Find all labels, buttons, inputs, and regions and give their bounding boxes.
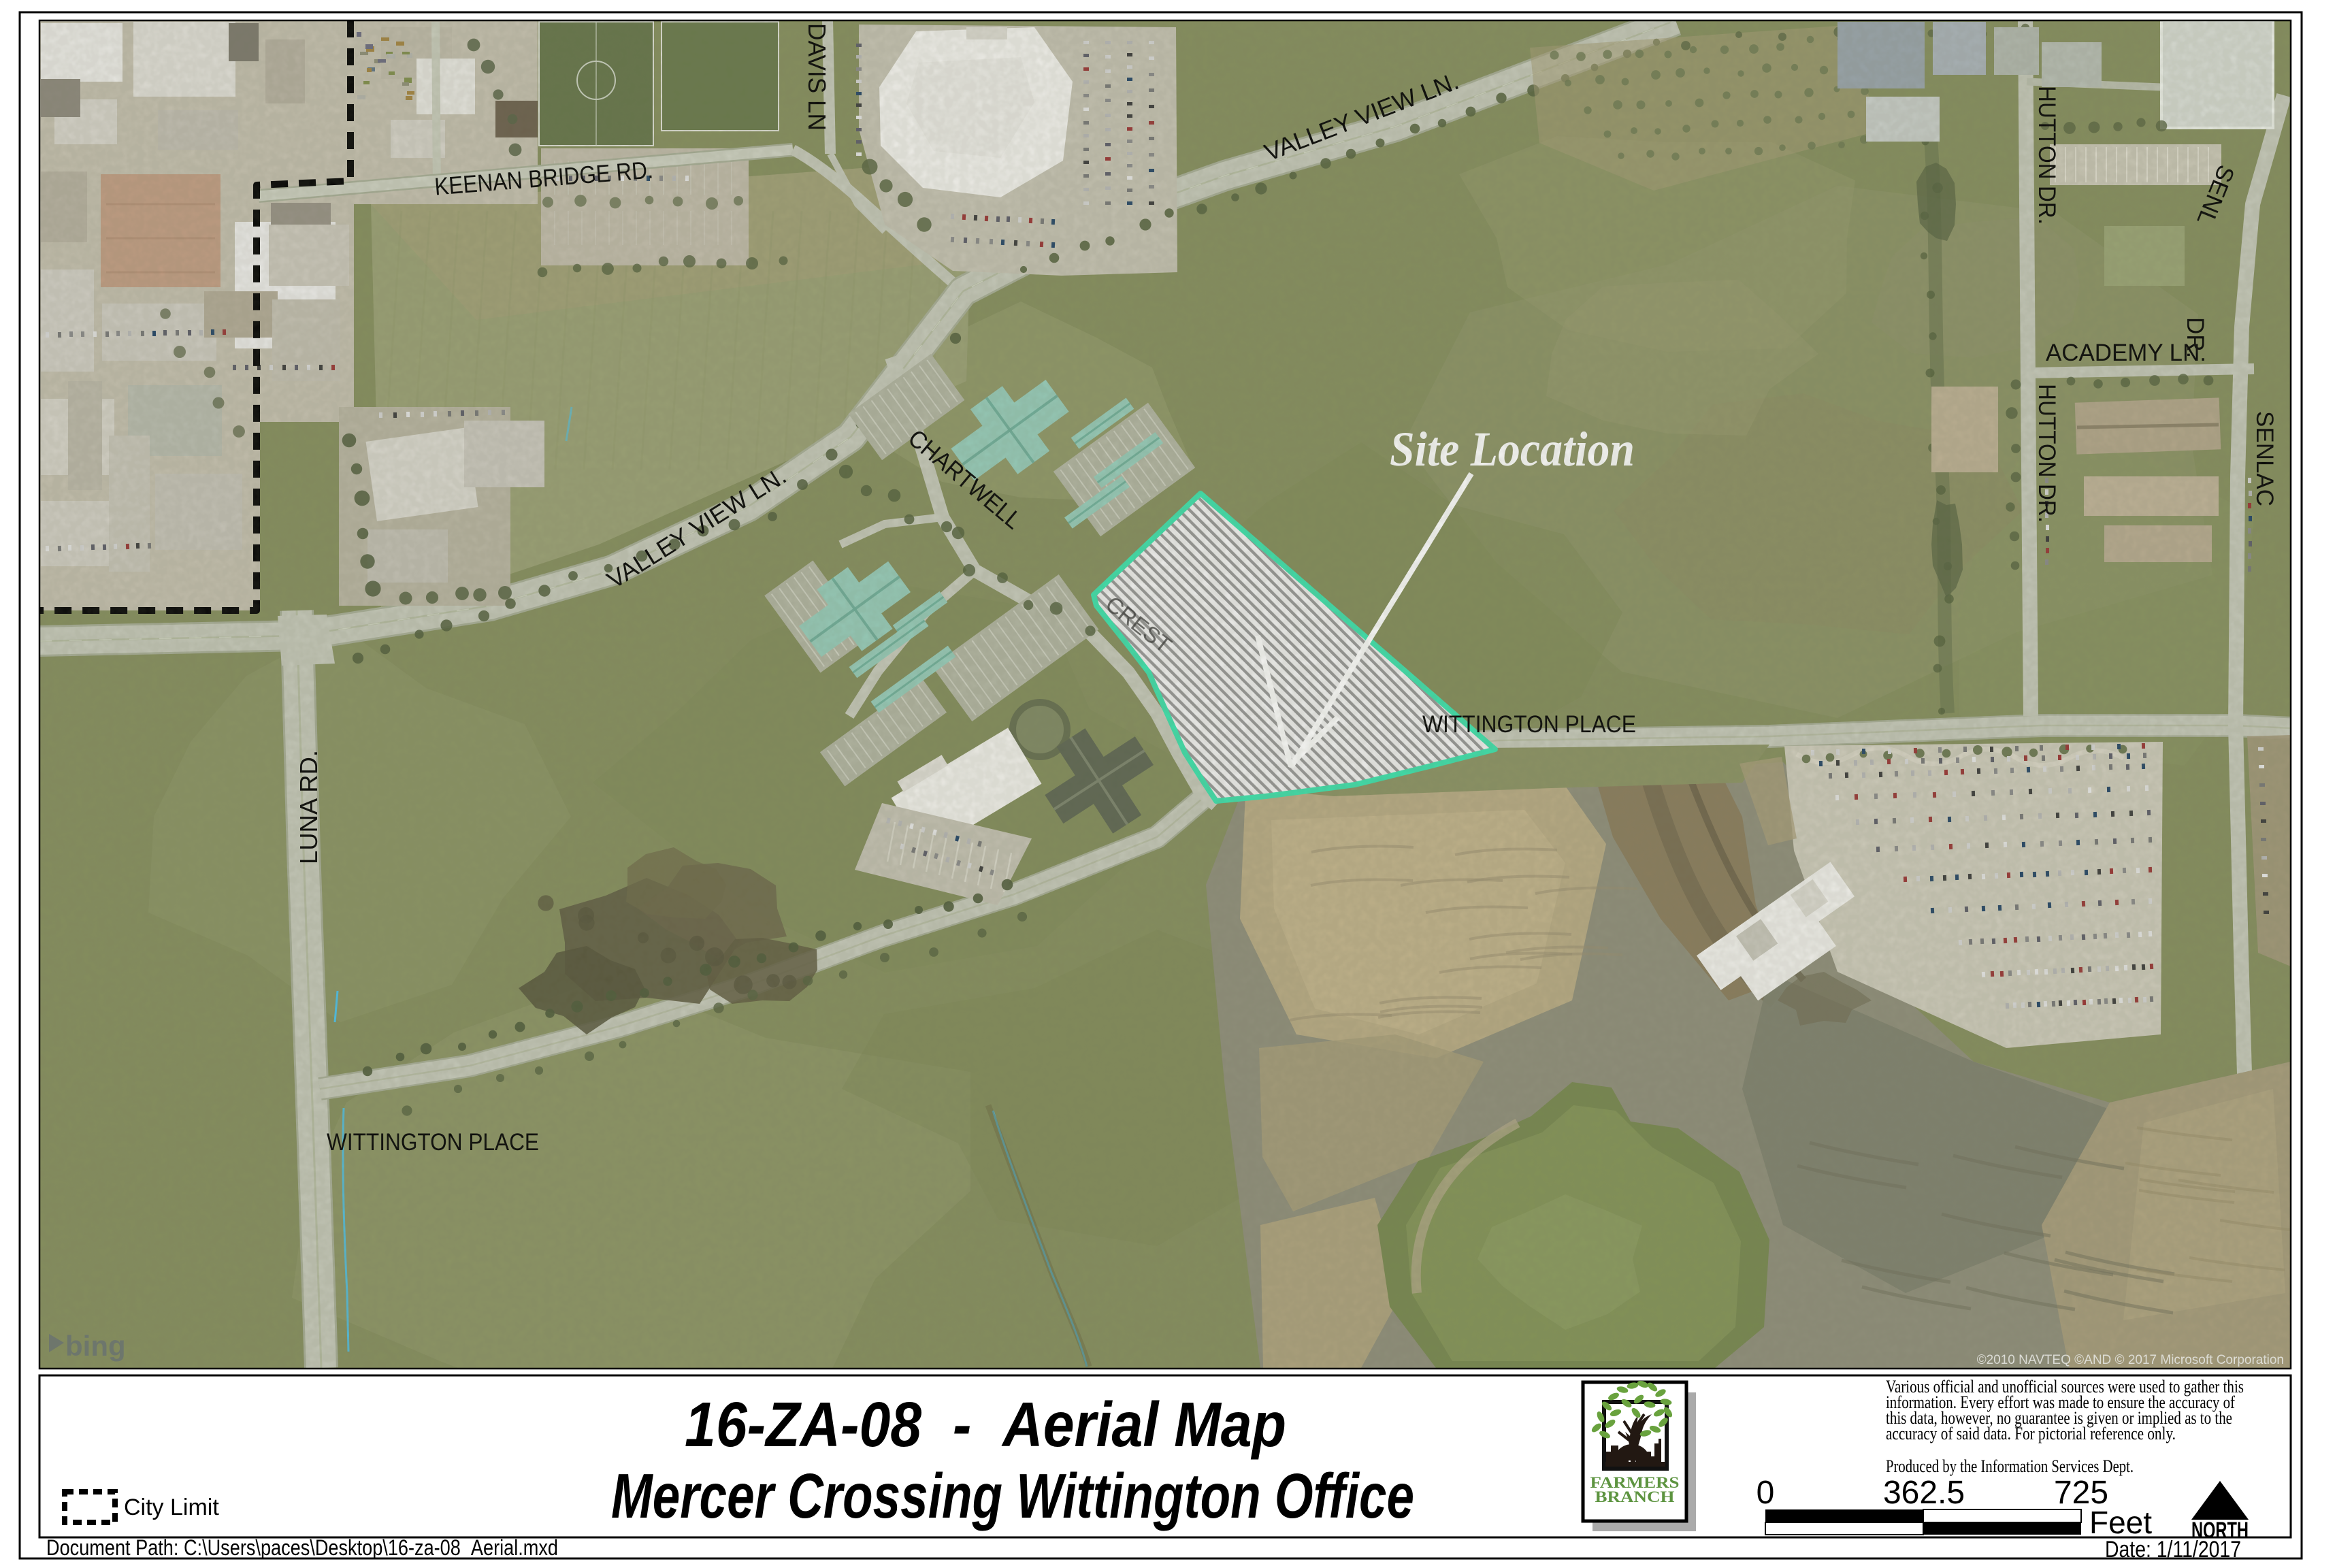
svg-text:City Limit: City Limit <box>124 1494 219 1520</box>
svg-text:Date: 1/11/2017: Date: 1/11/2017 <box>2105 1537 2241 1563</box>
svg-text:BRANCH: BRANCH <box>1595 1488 1675 1505</box>
svg-text:362.5: 362.5 <box>1883 1475 1965 1511</box>
svg-text:accuracy of said data. For pi: accuracy of said data. For pictorial ref… <box>1886 1424 2176 1443</box>
svg-text:16-ZA-08 - Aerial Map: 16-ZA-08 - Aerial Map <box>685 1389 1286 1460</box>
svg-text:Feet: Feet <box>2089 1505 2152 1540</box>
svg-text:0: 0 <box>1757 1475 1775 1511</box>
svg-text:Document Path: C:\Users\paces\: Document Path: C:\Users\paces\Desktop\16… <box>46 1535 558 1560</box>
svg-text:Produced by the Information Se: Produced by the Information Services Dep… <box>1886 1456 2134 1476</box>
svg-text:Mercer Crossing Wittington Off: Mercer Crossing Wittington Office <box>611 1460 1414 1531</box>
